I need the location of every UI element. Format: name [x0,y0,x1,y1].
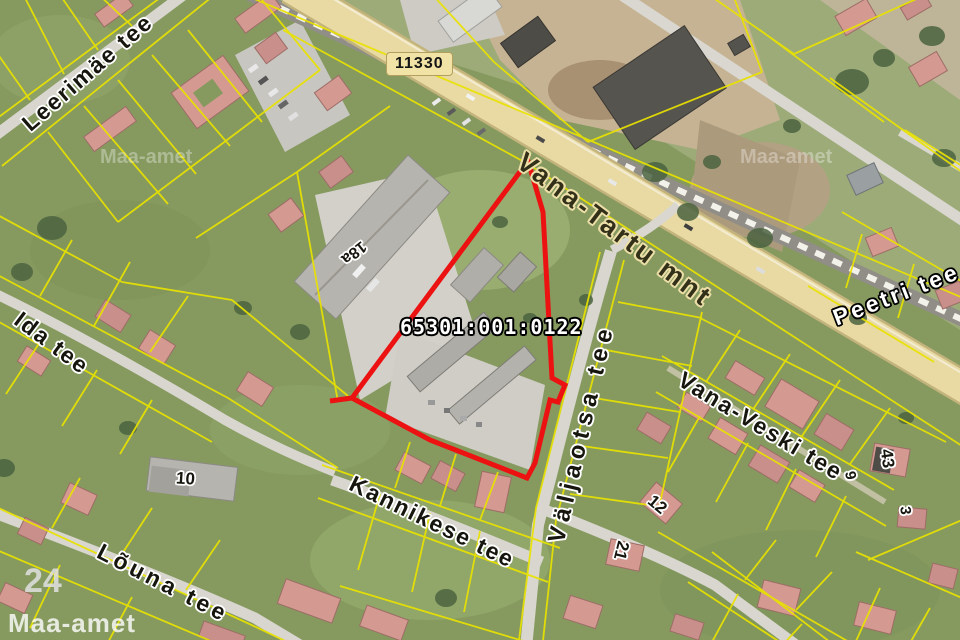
map-canvas[interactable]: Vana-Tartu mnt Leerimäe tee Ida tee Lõun… [0,0,960,640]
road-number-badge: 11330 [386,52,453,76]
map-orthophoto [0,0,960,640]
